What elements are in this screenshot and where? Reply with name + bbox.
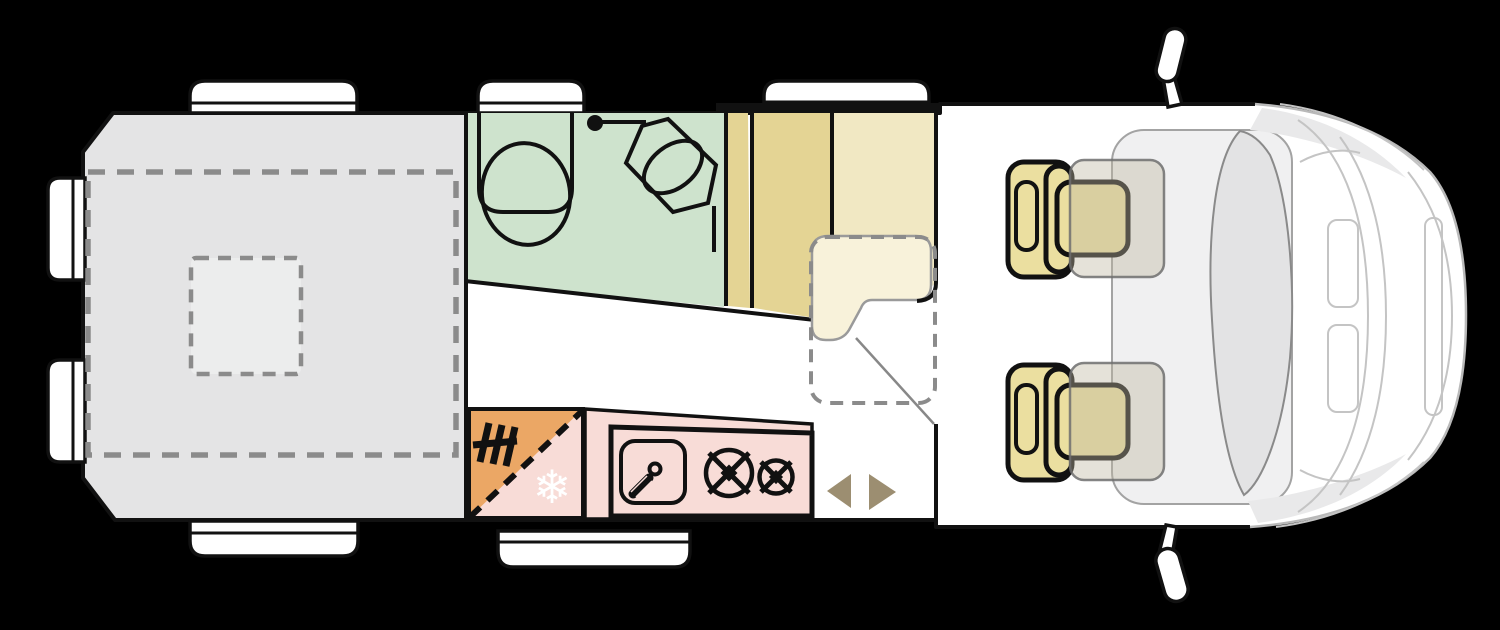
tail-tab-bottom [48, 360, 85, 462]
roof-hatch [191, 258, 301, 374]
lounge-top-wall [716, 103, 940, 114]
mirror-head-bottom [1153, 546, 1191, 605]
window-bottom-kitchen [498, 531, 690, 567]
window-top-rear [190, 81, 357, 113]
floorplan-svg: ❄ [0, 0, 1500, 630]
tail-tab-top [48, 178, 85, 280]
window-top-bathroom [478, 81, 584, 113]
side-mirror-bottom [1153, 525, 1191, 604]
floorplan-stage: ❄ [0, 0, 1500, 630]
driver-seat [1008, 160, 1164, 277]
kitchen [585, 409, 812, 519]
passenger-seat [1008, 363, 1164, 480]
driver-seat-swivel [1070, 160, 1164, 277]
wardrobe-strip-1 [728, 113, 750, 308]
window-bottom-rear [190, 521, 358, 556]
fridge-heater-block: ❄ [469, 409, 583, 518]
tail-lights [48, 178, 85, 462]
shower-head-dot [587, 115, 603, 131]
snowflake-icon: ❄ [533, 460, 572, 514]
passenger-seat-swivel [1070, 363, 1164, 480]
side-mirror-top [1154, 26, 1188, 107]
mirror-head-top [1154, 26, 1188, 84]
